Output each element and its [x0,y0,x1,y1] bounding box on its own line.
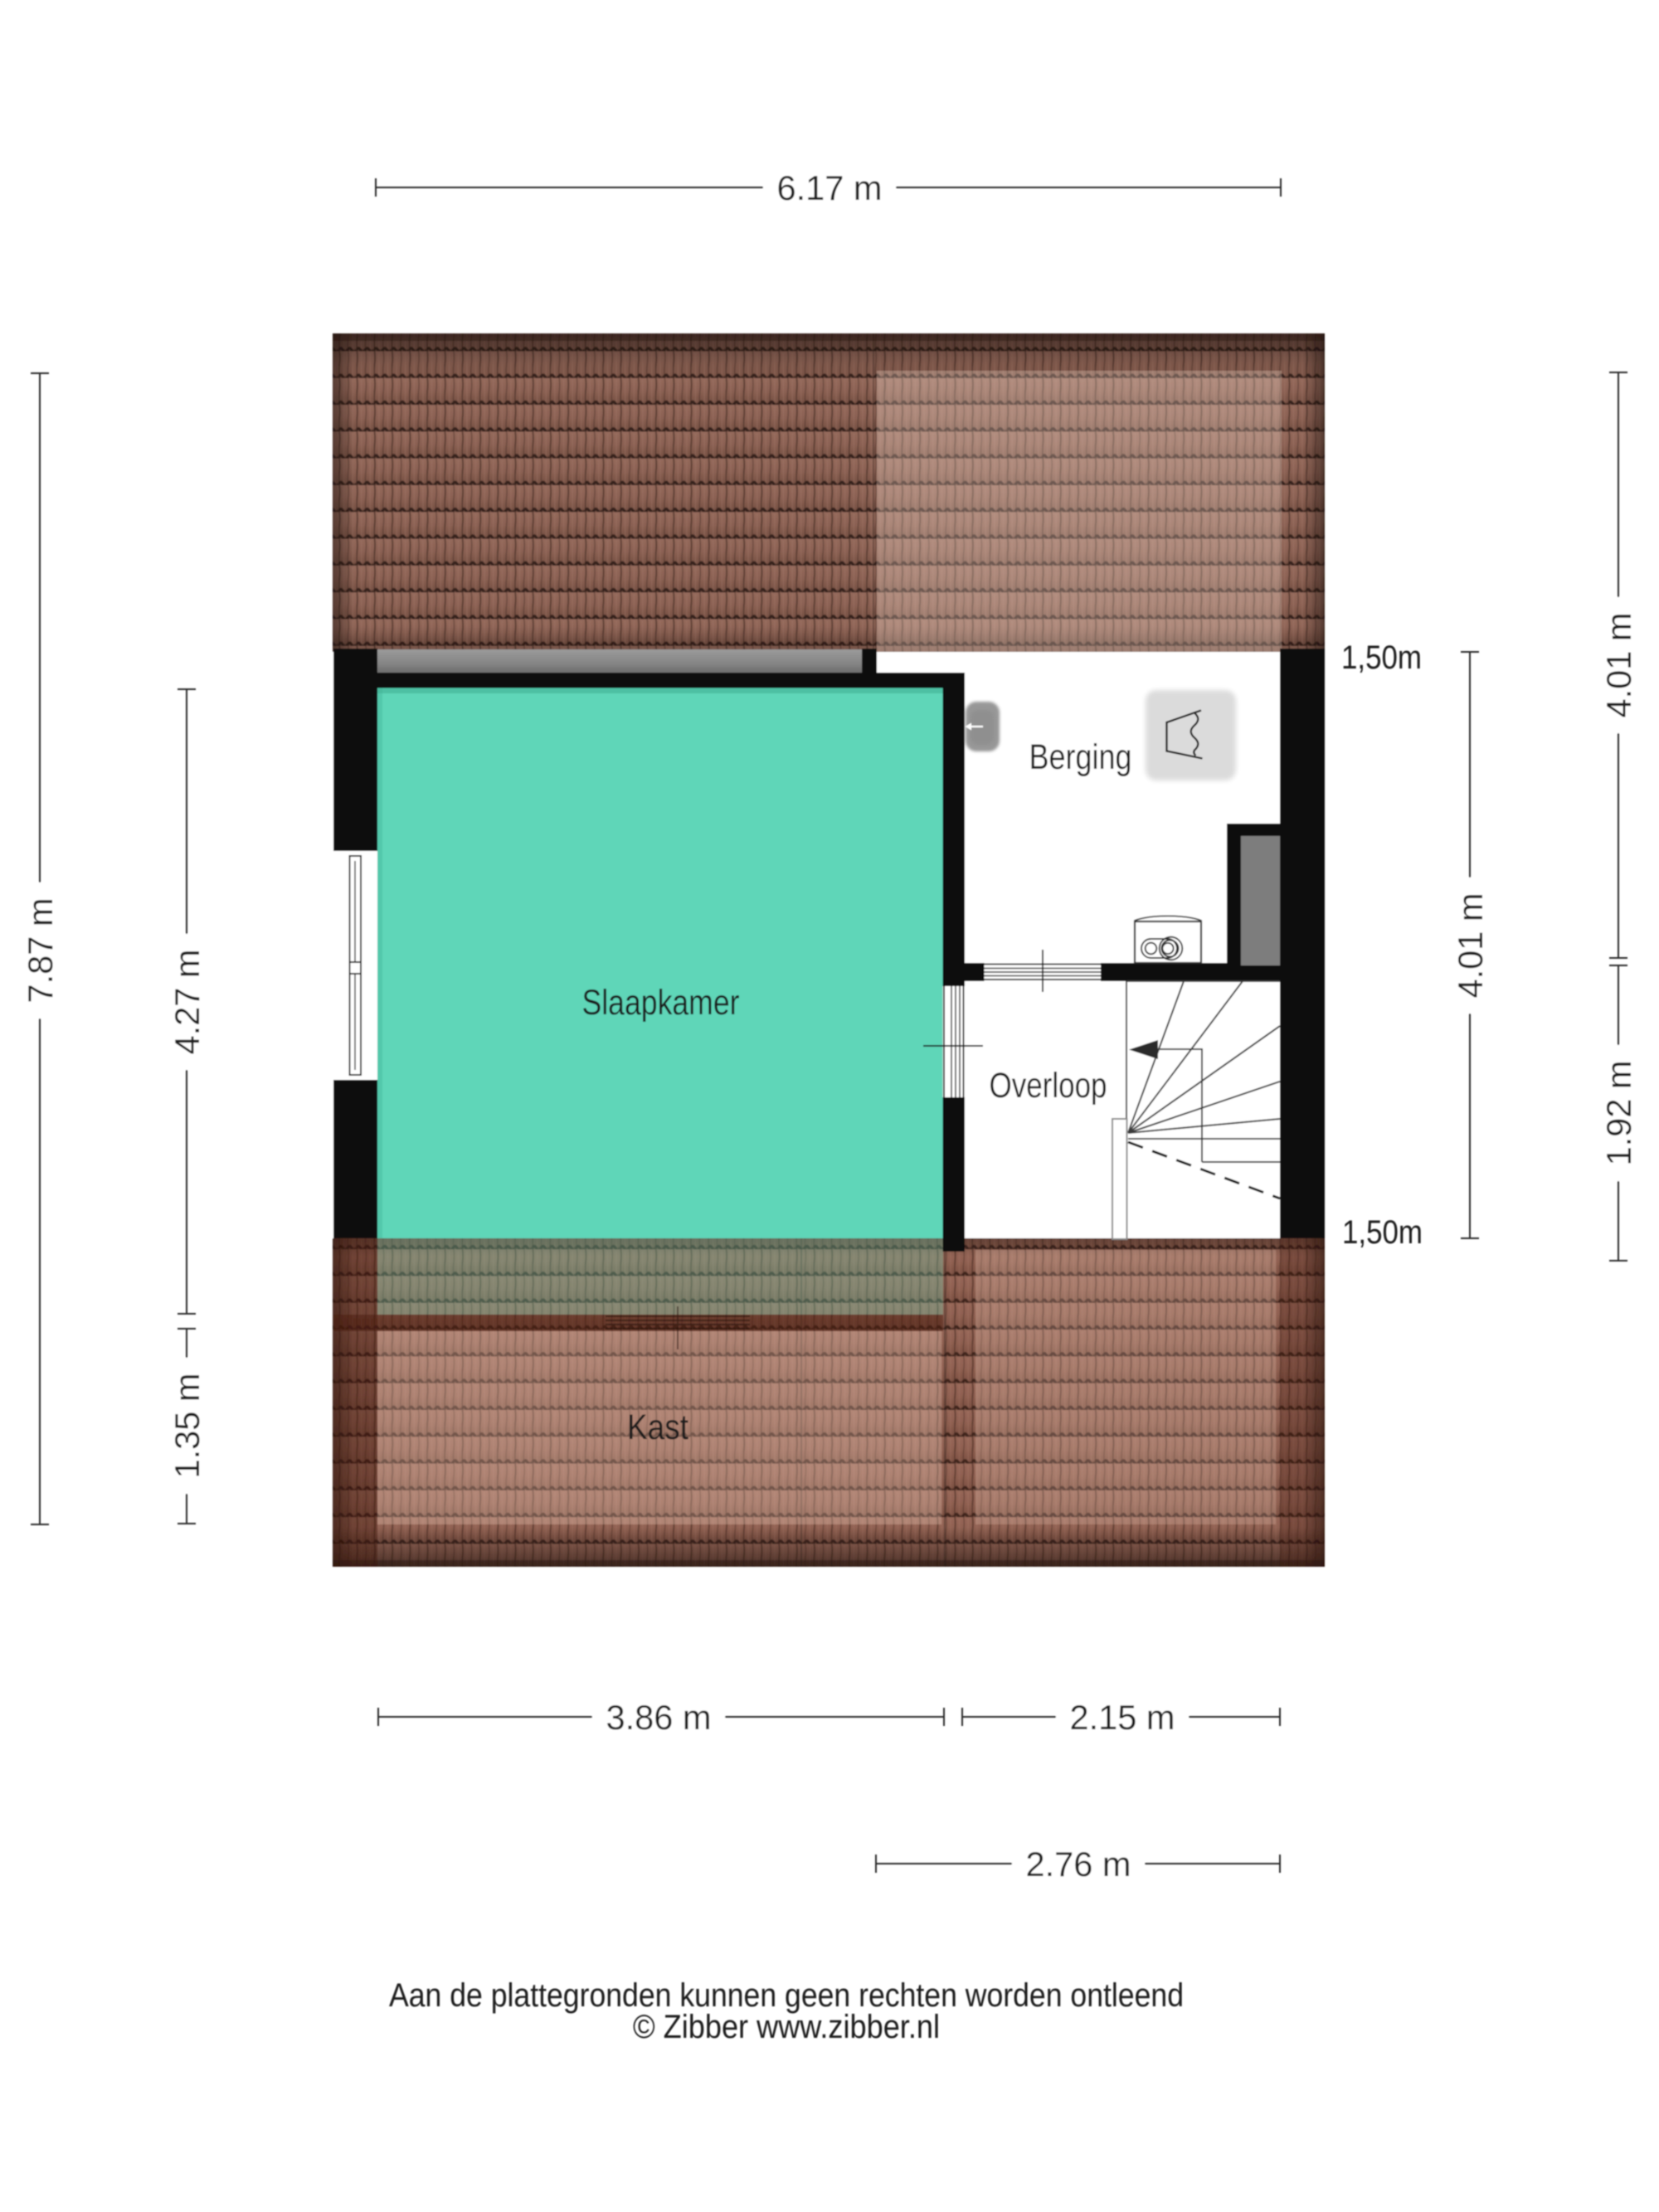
svg-text:1.35 m: 1.35 m [168,1373,207,1479]
svg-text:2.15 m: 2.15 m [1070,1698,1175,1737]
svg-text:Kast: Kast [627,1407,688,1447]
svg-text:1.92 m: 1.92 m [1599,1061,1638,1166]
svg-text:4.27 m: 4.27 m [168,950,207,1055]
svg-text:Berging: Berging [1029,737,1132,777]
svg-text:Slaapkamer: Slaapkamer [582,983,740,1023]
svg-text:1,50m: 1,50m [1342,1214,1423,1251]
svg-text:4.01 m: 4.01 m [1451,893,1490,999]
svg-text:2.76 m: 2.76 m [1026,1845,1131,1884]
svg-text:3.86 m: 3.86 m [606,1698,712,1737]
svg-text:Overloop: Overloop [990,1066,1107,1106]
svg-text:7.87 m: 7.87 m [21,898,60,1004]
svg-text:4.01 m: 4.01 m [1599,613,1638,718]
svg-text:6.17 m: 6.17 m [777,168,883,207]
svg-text:1,50m: 1,50m [1341,639,1422,676]
svg-text:© Zibber www.zibber.nl: © Zibber www.zibber.nl [633,2009,940,2045]
